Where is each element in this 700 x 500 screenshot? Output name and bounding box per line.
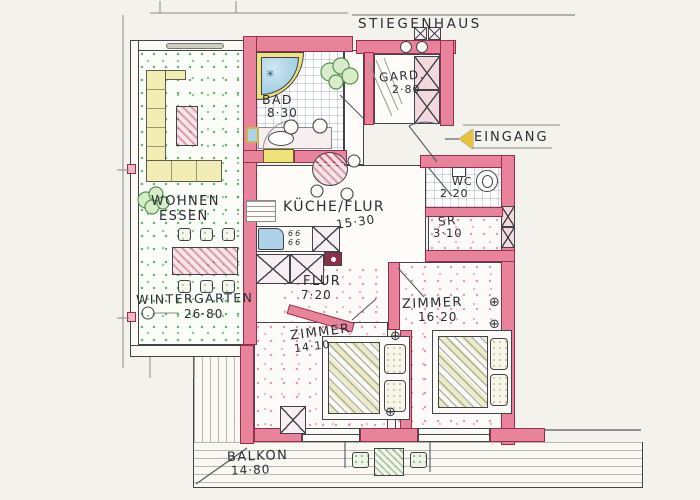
wall-bad-bottom-left	[243, 150, 265, 163]
radiator-icon: ⊕	[390, 330, 401, 343]
area-balkon: 14·80	[231, 463, 271, 476]
window-zimmer-gross	[418, 428, 490, 442]
balkon-side-deck	[193, 357, 240, 445]
label-gard: Gard.	[379, 68, 426, 83]
wall-bad-top	[243, 36, 353, 52]
wall-south-3	[490, 428, 545, 442]
title-stiegenhaus: Stiegenhaus	[358, 18, 482, 32]
area-zimmer-gross: 16·20	[418, 311, 457, 323]
dryer-icon	[416, 41, 428, 53]
area-wc: 2·20	[440, 188, 469, 199]
pillow-icon	[384, 344, 406, 374]
balcony-chair-icon	[410, 452, 427, 468]
entrance-arrow-icon	[459, 129, 473, 149]
bed-mattress-icon	[438, 336, 488, 408]
area-bad: 8·30	[267, 107, 298, 119]
bed-mattress-icon	[328, 342, 380, 414]
pillow-icon	[490, 338, 508, 370]
label-bad: Bad	[262, 94, 293, 107]
radiator-panel-icon	[246, 200, 276, 222]
chimney-box-icon-1	[501, 206, 515, 227]
wall-zimmer-klein-west	[240, 345, 254, 444]
dining-chair	[200, 228, 213, 241]
floor-plan: ✳ 66 66 ⊕ ⊕ ⊕ ⊕	[0, 0, 700, 500]
washbasin-icon	[268, 131, 294, 146]
balcony-chair-icon	[352, 452, 369, 468]
wall-wintergarten-bottom	[130, 345, 248, 357]
toilet-bowl	[482, 175, 493, 188]
radiator-icon: ⊕	[385, 406, 396, 419]
sofa-bottom-icon	[146, 160, 222, 182]
label-wohnen: Wohnen	[151, 195, 220, 208]
stairwell-corridor-floor	[344, 50, 364, 165]
wall-left-marker-2	[127, 312, 136, 322]
cabinet-icon	[312, 226, 340, 252]
cooktop-row: 66	[288, 229, 302, 238]
kitchen-table-icon	[312, 152, 348, 186]
shelf-top	[166, 43, 224, 49]
radiator-icon: ⊕	[489, 296, 500, 309]
label-zimmer-gross: Zimmer	[402, 296, 463, 311]
wall-gard-left	[364, 52, 374, 125]
wall-south-2	[360, 428, 418, 442]
chimney-box-icon-2	[501, 227, 515, 248]
cooktop-row: 66	[288, 238, 302, 247]
oven-icon	[324, 252, 342, 266]
area-sr: 3·10	[433, 228, 463, 240]
label-wintergarten: Wintergarten	[136, 292, 254, 307]
shower-jet-icon: ✳	[266, 70, 274, 80]
dining-table-icon	[172, 247, 238, 275]
cooktop-icon: 66 66	[288, 229, 302, 247]
balcony-table-icon	[374, 448, 404, 476]
area-gard: 2·80	[392, 84, 421, 95]
dining-chair	[222, 228, 235, 241]
pillow-icon	[490, 374, 508, 406]
label-wc: WC	[452, 176, 473, 187]
pass-window-icon	[246, 127, 259, 143]
coffee-table-icon	[176, 106, 198, 146]
bad-door-yellow	[263, 149, 294, 163]
area-flur: 7·20	[301, 289, 332, 301]
washer-icon	[400, 41, 412, 53]
wardrobe-icon	[280, 406, 306, 434]
wall-left-marker-1	[127, 164, 136, 174]
oven-knob	[331, 257, 336, 262]
label-essen: Essen	[159, 210, 209, 223]
window-zimmer-klein	[302, 428, 360, 442]
wall-entry-right	[440, 40, 454, 126]
cabinet-icon	[256, 254, 290, 284]
wall-zimmer-gross-west	[388, 262, 400, 330]
kitchen-sink-icon	[258, 228, 284, 250]
toilet-icon	[476, 170, 498, 192]
area-wintergarten: 26·80	[184, 308, 223, 320]
wall-sr-bottom	[425, 250, 515, 262]
dining-chair	[178, 228, 191, 241]
label-eingang: Eingang	[474, 131, 549, 144]
label-flur: Flur	[303, 275, 341, 288]
radiator-icon: ⊕	[489, 318, 500, 331]
